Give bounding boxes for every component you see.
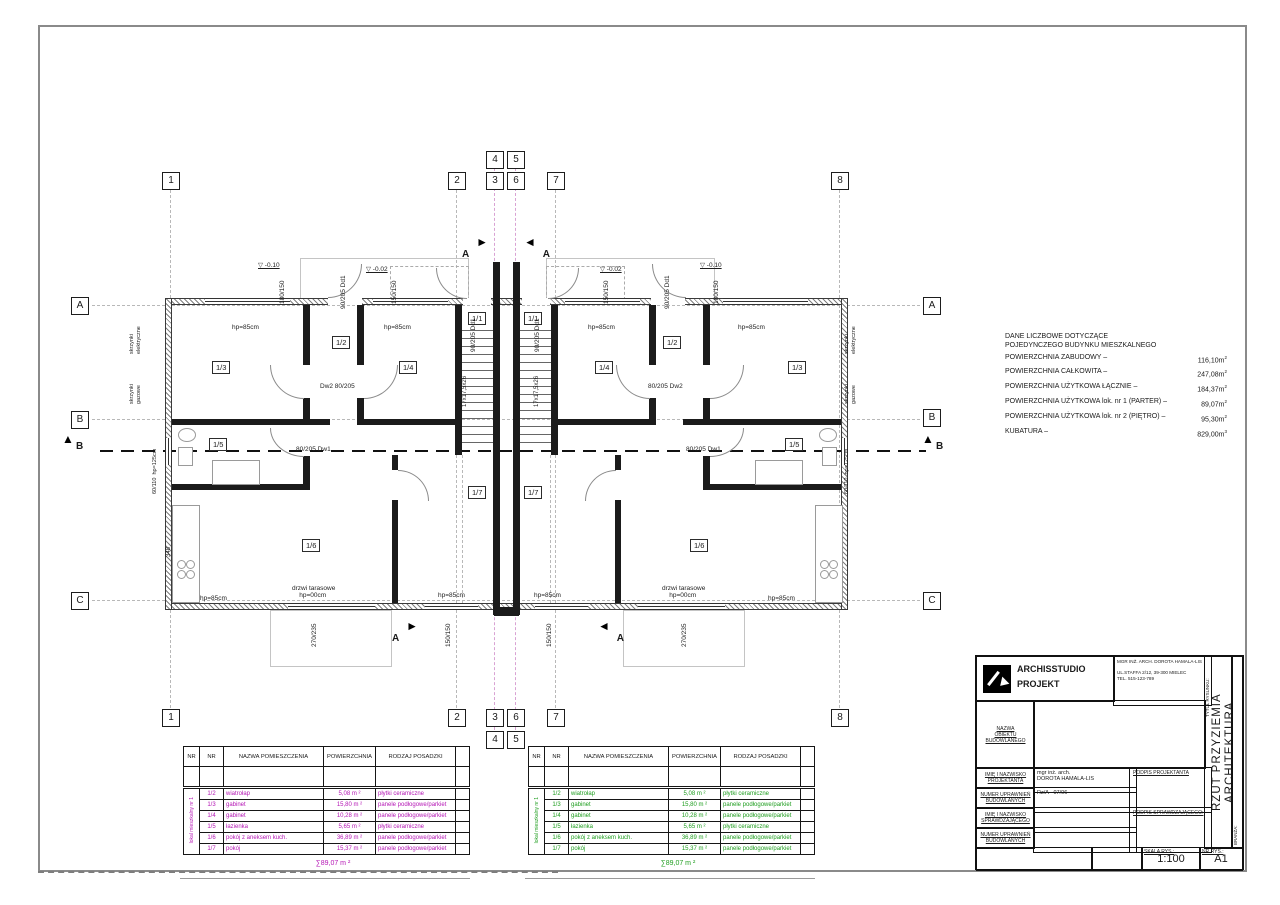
window — [165, 438, 172, 465]
cell-num: 1/7 — [200, 844, 224, 855]
branza-label: BRANŻA: — [1233, 785, 1240, 845]
grid-bubble-B: B — [923, 409, 941, 427]
plan-annotation: 270/235 — [681, 624, 688, 648]
section-flag-B: ▲B — [920, 433, 946, 457]
wall — [303, 305, 310, 365]
plan-annotation: 17x17,5x26 — [534, 376, 541, 407]
table-row: 1/7pokój15,37 m ²panele podłogowe/parkie… — [184, 844, 470, 855]
kitchen-counter — [815, 505, 843, 603]
empty-cell — [1091, 847, 1143, 871]
room-label-1/5: 1/5 — [209, 438, 227, 451]
plan-annotation: Dw2 80/205 — [320, 383, 355, 390]
plan-annotation: hp=85cm — [738, 324, 765, 331]
plan-annotation: 90/205 Dd1 — [470, 318, 477, 352]
table-row: lokal mieszkalny nr 11/2wiatrołap5,08 m … — [529, 788, 815, 800]
door-arc — [710, 365, 744, 399]
window — [425, 603, 478, 610]
plan-annotation: drzwi tarasowe hp=00cm — [292, 585, 335, 599]
empty-cell — [545, 767, 569, 788]
plan-annotation: 150/150 — [603, 281, 610, 305]
grid-bubble-2: 2 — [448, 709, 466, 727]
grid-bubble-1: 1 — [162, 709, 180, 727]
table-sum: ∑89,07 m ² — [528, 860, 828, 867]
drawing-no-cell: NR RYS.: A1 — [1199, 847, 1243, 871]
table-header: POWIERZCHNIA — [324, 747, 376, 767]
cell-floor: panele podłogowe/parkiet — [721, 811, 801, 822]
wall — [551, 419, 655, 425]
grid-bubble-6: 6 — [507, 709, 525, 727]
wall — [649, 305, 656, 365]
info-item: POWIERZCHNIA ZABUDOWY –116,10m2 — [1005, 353, 1227, 365]
wall — [172, 419, 330, 425]
grid-bubble-A: A — [71, 297, 89, 315]
door-arc — [398, 470, 429, 501]
grid-line-8 — [839, 190, 840, 708]
empty-cell — [721, 767, 801, 788]
grid-bubble-B: B — [71, 411, 89, 429]
empty-cell — [801, 767, 815, 788]
table-sum: ∑89,07 m ² — [183, 860, 483, 867]
field-proj-label: IMIĘ I NAZWISKO PROJEKTANTA — [976, 767, 1035, 789]
cell-area: 10,28 m ² — [324, 811, 376, 822]
grid-bubble-4: 4 — [486, 731, 504, 749]
cell-end — [456, 833, 470, 844]
cell-area: 15,80 m ² — [669, 800, 721, 811]
cell-end — [801, 811, 815, 822]
table-row: 1/5łazienka5,65 m ²płytki ceramiczne — [529, 822, 815, 833]
wall — [615, 500, 621, 603]
plan-annotation: 180/150 — [279, 281, 286, 305]
window — [535, 603, 588, 610]
cell-name: pokój z aneksem kuch. — [224, 833, 324, 844]
table-header: NR — [184, 747, 200, 767]
cell-end — [456, 800, 470, 811]
room-label-1/5: 1/5 — [785, 438, 803, 451]
stair-wall-left — [455, 305, 462, 455]
cell-end — [456, 811, 470, 822]
toilet — [178, 447, 193, 466]
terrace-door — [638, 603, 725, 610]
cell-num: 1/5 — [545, 822, 569, 833]
room-label-1/6: 1/6 — [302, 539, 320, 552]
cell-end — [801, 844, 815, 855]
empty-cell — [456, 767, 470, 788]
window — [205, 298, 290, 305]
burner — [186, 570, 195, 579]
rule — [180, 878, 470, 879]
stair-dash — [550, 455, 551, 603]
plan-annotation: 60/110 hp=125cm — [152, 449, 159, 494]
door-opening — [463, 298, 491, 305]
empty-cell — [376, 767, 456, 788]
stair-dash — [462, 455, 463, 603]
plan-annotation: ▽ -0.10 — [700, 262, 722, 269]
field-upr1-label: NUMER UPRAWNIEŃ BUDOWLANYCH — [976, 787, 1035, 809]
empty-cell — [569, 767, 669, 788]
wall — [703, 305, 710, 365]
table-header: NAZWA POMIESZCZENIA — [569, 747, 669, 767]
field-upr2-label: NUMER UPRAWNIEŃ BUDOWLANYCH — [976, 827, 1035, 849]
logo-line2: PROJEKT — [1017, 681, 1060, 687]
cell-end — [801, 800, 815, 811]
cell-num: 1/3 — [545, 800, 569, 811]
cell-area: 5,65 m ² — [324, 822, 376, 833]
plan-annotation: ▽ -0.02 — [366, 266, 388, 273]
cell-floor: płytki ceramiczne — [721, 822, 801, 833]
info-item: POWIERZCHNIA UŻYTKOWA ŁĄCZNIE –184,37m2 — [1005, 382, 1227, 394]
grid-bubble-4: 4 — [486, 151, 504, 169]
empty-cell — [669, 767, 721, 788]
cell-name: pokój — [569, 844, 669, 855]
wall — [703, 456, 710, 490]
empty-cell — [976, 847, 1093, 871]
table-header: POWIERZCHNIA — [669, 747, 721, 767]
cell-name: wiatrołap — [224, 788, 324, 800]
grid-bubble-A: A — [923, 297, 941, 315]
room-label-1/2: 1/2 — [332, 336, 350, 349]
info-heading: DANE LICZBOWE DOTYCZĄCE POJEDYNCZEGO BUD… — [1005, 332, 1227, 350]
plan-annotation: 150/150 — [391, 281, 398, 305]
cell-area: 15,80 m ² — [324, 800, 376, 811]
wall — [683, 419, 841, 425]
table-row: 1/4gabinet10,28 m ²panele podłogowe/park… — [184, 811, 470, 822]
info-item: POWIERZCHNIA UŻYTKOWA lok. nr 1 (PARTER)… — [1005, 397, 1227, 409]
cell-num: 1/2 — [545, 788, 569, 800]
empty-cell — [200, 767, 224, 788]
cell-num: 1/3 — [200, 800, 224, 811]
room-label-1/6: 1/6 — [690, 539, 708, 552]
info-item: POWIERZCHNIA UŻYTKOWA lok. nr 2 (PIĘTRO)… — [1005, 412, 1227, 424]
table-row: 1/4gabinet10,28 m ²panele podłogowe/park… — [529, 811, 815, 822]
sink — [819, 428, 837, 442]
burner — [177, 570, 186, 579]
cell-num: 1/5 — [200, 822, 224, 833]
terrace-left — [270, 610, 392, 667]
cell-area: 15,37 m ² — [324, 844, 376, 855]
stair-wall-right — [551, 305, 558, 455]
party-wall-left — [493, 262, 500, 615]
burner — [186, 560, 195, 569]
plan-annotation: 80/205 Dw1 — [686, 446, 721, 453]
scale-value: 1:100 — [1142, 856, 1200, 862]
table-header: RODZAJ POSADZKI — [376, 747, 456, 767]
grid-bubble-5: 5 — [507, 151, 525, 169]
cell-name: gabinet — [569, 800, 669, 811]
cell-area: 15,37 m ² — [669, 844, 721, 855]
section-flag-A: ◄A — [598, 620, 624, 644]
table-row: lokal mieszkalny nr 11/2wiatrołap5,08 m … — [184, 788, 470, 800]
room-schedule-table: NRNRNAZWA POMIESZCZENIAPOWIERZCHNIARODZA… — [183, 746, 470, 855]
cell-name: łazienka — [224, 822, 324, 833]
plan-annotation: hp=85cm — [534, 592, 561, 599]
cell-area: 5,65 m ² — [669, 822, 721, 833]
party-wall-foot — [494, 607, 519, 616]
room-label-1/4: 1/4 — [399, 361, 417, 374]
cell-floor: panele podłogowe/parkiet — [376, 844, 456, 855]
cell-floor: panele podłogowe/parkiet — [376, 800, 456, 811]
table-row: 1/3gabinet15,80 m ²panele podłogowe/park… — [184, 800, 470, 811]
plan-annotation: drzwi tarasowe hp=00cm — [662, 585, 705, 599]
cell-end — [456, 844, 470, 855]
field-nazwa-label: NAZWA OBIEKTU BUDOWLANEGO — [976, 700, 1035, 769]
info-item: KUBATURA –829,00m3 — [1005, 427, 1227, 439]
cell-floor: panele podłogowe/parkiet — [721, 800, 801, 811]
table-row: 1/6pokój z aneksem kuch.36,89 m ²panele … — [529, 833, 815, 844]
plan-annotation: skrzynki elektryczne — [129, 326, 143, 354]
party-wall-right — [513, 262, 520, 615]
table-row: 1/6pokój z aneksem kuch.36,89 m ²panele … — [184, 833, 470, 844]
table-header: NR — [545, 747, 569, 767]
plan-annotation: hp=85cm — [768, 595, 795, 602]
logo-line1: ARCHISSTUDIO — [1017, 666, 1086, 672]
room-label-1/2: 1/2 — [663, 336, 681, 349]
cell-floor: panele podłogowe/parkiet — [376, 811, 456, 822]
cell-floor: panele podłogowe/parkiet — [721, 844, 801, 855]
cell-floor: płytki ceramiczne — [721, 788, 801, 800]
burner — [820, 570, 829, 579]
grid-bubble-6: 6 — [507, 172, 525, 190]
cell-num: 1/4 — [545, 811, 569, 822]
scale-cell: SKALA RYS.: 1:100 — [1141, 847, 1201, 871]
plan-annotation: 60/110 hp=125cm — [844, 449, 851, 494]
drawing-no-value: A1 — [1200, 856, 1242, 862]
cell-floor: panele podłogowe/parkiet — [721, 833, 801, 844]
room-schedule-table: NRNRNAZWA POMIESZCZENIAPOWIERZCHNIARODZA… — [528, 746, 815, 855]
room-label-1/4: 1/4 — [595, 361, 613, 374]
plan-annotation: hp=85cm — [200, 595, 227, 602]
room-table-left: NRNRNAZWA POMIESZCZENIAPOWIERZCHNIARODZA… — [183, 746, 483, 867]
empty-cell — [184, 767, 200, 788]
drawing-title: RZUT PRZYZIEMIA ARCHITEKTURA — [1211, 659, 1231, 845]
toilet — [822, 447, 837, 466]
cell-num: 1/7 — [545, 844, 569, 855]
door-opening — [522, 298, 550, 305]
grid-bubble-8: 8 — [831, 709, 849, 727]
plan-annotation: hp=85cm — [588, 324, 615, 331]
section-flag-A: ►A — [392, 620, 418, 644]
cell-num: 1/2 — [200, 788, 224, 800]
plan-annotation: 90/205 Dd1 — [664, 275, 671, 309]
table-row: 1/7pokój15,37 m ²panele podłogowe/parkie… — [529, 844, 815, 855]
grid-bubble-7: 7 — [547, 709, 565, 727]
kitchen-counter — [172, 505, 200, 603]
table-header — [801, 747, 815, 767]
cell-floor: panele podłogowe/parkiet — [376, 833, 456, 844]
info-item: POWIERZCHNIA CAŁKOWITA –247,08m2 — [1005, 367, 1227, 379]
wall — [615, 455, 621, 470]
cell-area: 36,89 m ² — [669, 833, 721, 844]
window — [723, 298, 808, 305]
archisstudio-logo — [983, 665, 1011, 693]
grid-bubble-3: 3 — [486, 709, 504, 727]
numeric-data-block: DANE LICZBOWE DOTYCZĄCE POJEDYNCZEGO BUD… — [1005, 332, 1227, 439]
table-header: NR — [200, 747, 224, 767]
field-sprawdz-label: IMIĘ I NAZWISKO SPRAWDZAJĄCEGO — [976, 807, 1035, 829]
cell-name: wiatrołap — [569, 788, 669, 800]
architect-info: MGR INŻ. ARCH. DOROTA HAMALA-LIS UL.STAF… — [1113, 656, 1212, 706]
bathtub — [212, 460, 260, 485]
plan-annotation: 150/150 — [546, 624, 553, 648]
plan-annotation: hp=85cm — [438, 592, 465, 599]
plan-annotation: 348 — [166, 547, 173, 557]
cell-end — [456, 822, 470, 833]
plan-annotation: 90/205 Dd1 — [534, 318, 541, 352]
cell-num: 1/6 — [545, 833, 569, 844]
wall — [392, 500, 398, 603]
window — [373, 298, 448, 305]
cell-name: gabinet — [224, 800, 324, 811]
cell-area: 5,08 m ² — [324, 788, 376, 800]
empty-cell — [529, 767, 545, 788]
cell-floor: płytki ceramiczne — [376, 822, 456, 833]
door-arc — [616, 365, 650, 399]
cell-num: 1/6 — [200, 833, 224, 844]
grid-bubble-C: C — [71, 592, 89, 610]
door-arc — [364, 365, 398, 399]
plan-annotation: 80/205 Dw1 — [296, 446, 331, 453]
cell-name: gabinet — [224, 811, 324, 822]
cell-num: 1/4 — [200, 811, 224, 822]
table-header — [456, 747, 470, 767]
drawing-sheet: { "info_block": { "heading": "DANE LICZB… — [0, 0, 1280, 905]
rule — [525, 878, 815, 879]
plan-annotation: 80/205 Dw2 — [648, 383, 683, 390]
cell-name: pokój — [224, 844, 324, 855]
section-flag-B: ▲B — [60, 433, 86, 457]
burner — [820, 560, 829, 569]
empty-cell — [324, 767, 376, 788]
section-flag-A: ►A — [462, 236, 488, 260]
room-label-1/3: 1/3 — [788, 361, 806, 374]
cell-end — [456, 788, 470, 800]
burner — [177, 560, 186, 569]
plan-annotation: skrzynki gazowe — [129, 384, 143, 404]
grid-bubble-5: 5 — [507, 731, 525, 749]
grid-bubble-8: 8 — [831, 172, 849, 190]
terrace-door — [288, 603, 375, 610]
plan-annotation: 17x17,5x26 — [462, 376, 469, 407]
wall — [358, 419, 462, 425]
wall — [357, 305, 364, 365]
burner — [829, 560, 838, 569]
table-header: NAZWA POMIESZCZENIA — [224, 747, 324, 767]
cell-area: 10,28 m ² — [669, 811, 721, 822]
cell-end — [801, 822, 815, 833]
title-block: ARCHISSTUDIO PROJEKT MGR INŻ. ARCH. DORO… — [975, 655, 1244, 870]
grid-bubble-1: 1 — [162, 172, 180, 190]
drawing-title-strip: TYTUŁ RYSUNKU: RZUT PRZYZIEMIA ARCHITEKT… — [1204, 656, 1233, 849]
grid-bubble-2: 2 — [448, 172, 466, 190]
cell-name: gabinet — [569, 811, 669, 822]
table-header: RODZAJ POSADZKI — [721, 747, 801, 767]
wall — [392, 455, 398, 470]
cell-name: pokój z aneksem kuch. — [569, 833, 669, 844]
plan-annotation: ▽ -0.10 — [258, 262, 280, 269]
cell-area: 36,89 m ² — [324, 833, 376, 844]
group-label: lokal mieszkalny nr 1 — [529, 788, 545, 855]
wall — [303, 456, 310, 490]
door-arc — [585, 470, 616, 501]
sink — [178, 428, 196, 442]
cell-end — [801, 833, 815, 844]
grid-bubble-3: 3 — [486, 172, 504, 190]
room-label-1/7: 1/7 — [468, 486, 486, 499]
empty-cell — [224, 767, 324, 788]
plan-annotation: skrzynki gazowe — [844, 384, 858, 404]
bathtub — [755, 460, 803, 485]
plan-annotation: hp=85cm — [232, 324, 259, 331]
group-label: lokal mieszkalny nr 1 — [184, 788, 200, 855]
plan-annotation: 150/150 — [445, 624, 452, 648]
plan-annotation: 180/150 — [713, 281, 720, 305]
grid-line-A — [92, 305, 920, 306]
grid-bubble-C: C — [923, 592, 941, 610]
section-flag-A: ◄A — [524, 236, 550, 260]
grid-bubble-7: 7 — [547, 172, 565, 190]
plan-annotation: hp=85cm — [384, 324, 411, 331]
field-nazwa-value — [1033, 700, 1206, 769]
plan-annotation: ▽ -0.02 — [600, 266, 622, 273]
room-label-1/3: 1/3 — [212, 361, 230, 374]
door-arc — [270, 365, 304, 399]
table-header: NR — [529, 747, 545, 767]
cell-floor: płytki ceramiczne — [376, 788, 456, 800]
branza-strip: BRANŻA: — [1231, 656, 1243, 849]
table-row: 1/3gabinet15,80 m ²panele podłogowe/park… — [529, 800, 815, 811]
plan-annotation: 270/235 — [311, 624, 318, 648]
cell-end — [801, 788, 815, 800]
cell-area: 5,08 m ² — [669, 788, 721, 800]
table-row: 1/5łazienka5,65 m ²płytki ceramiczne — [184, 822, 470, 833]
room-table-right: NRNRNAZWA POMIESZCZENIAPOWIERZCHNIARODZA… — [528, 746, 828, 867]
burner — [829, 570, 838, 579]
room-label-1/7: 1/7 — [524, 486, 542, 499]
plan-annotation: skrzynki elektryczne — [844, 326, 858, 354]
cell-name: łazienka — [569, 822, 669, 833]
plan-annotation: 90/205 Dd1 — [340, 275, 347, 309]
